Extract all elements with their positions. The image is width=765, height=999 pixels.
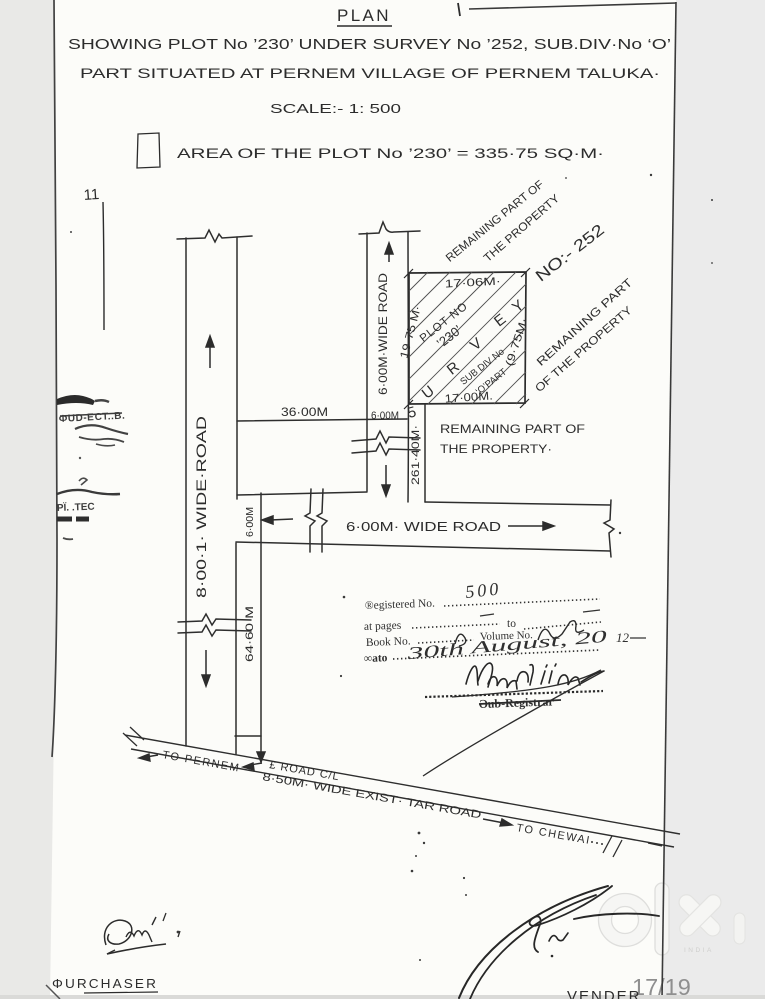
svg-text:AREA OF THE PLOT No ’230’ = 33: AREA OF THE PLOT No ’230’ = 335·75 SQ·M· bbox=[177, 146, 604, 161]
svg-text:at pages: at pages bbox=[364, 620, 402, 633]
svg-text:INDIA: INDIA bbox=[684, 947, 714, 954]
svg-text:6·00M·WIDE ROAD: 6·00M·WIDE ROAD bbox=[376, 273, 390, 395]
svg-text:PЇ. .ТΕС: PЇ. .ТΕС bbox=[57, 500, 95, 514]
svg-text:500: 500 bbox=[464, 578, 502, 602]
svg-text:THE PROPERTY·: THE PROPERTY· bbox=[440, 442, 552, 456]
svg-text:6·00M: 6·00M bbox=[371, 410, 399, 422]
svg-text:261·40M·: 261·40M· bbox=[410, 425, 422, 485]
svg-text:36·00M: 36·00M bbox=[281, 405, 328, 419]
svg-text:VENDER: VENDER bbox=[567, 988, 642, 999]
svg-text:to: to bbox=[507, 618, 516, 630]
svg-text:∞ato: ∞ato bbox=[364, 652, 388, 665]
svg-text:6·00M· WIDE ROAD: 6·00M· WIDE ROAD bbox=[346, 519, 501, 534]
svg-text:64·60 M: 64·60 M bbox=[244, 606, 256, 662]
svg-text:PLAN: PLAN bbox=[337, 6, 391, 25]
svg-text:SHOWING PLOT No ’230’ UNDER SU: SHOWING PLOT No ’230’ UNDER SURVEY No ’2… bbox=[68, 37, 671, 53]
svg-text:11: 11 bbox=[83, 186, 100, 204]
svg-text:SCALE:- 1: 500: SCALE:- 1: 500 bbox=[270, 101, 401, 116]
svg-text:REMAINING PART OF: REMAINING PART OF bbox=[440, 422, 585, 436]
svg-text:6·00M: 6·00M bbox=[245, 507, 256, 537]
svg-text:®egistered No.: ®egistered No. bbox=[365, 598, 436, 612]
svg-text:12: 12 bbox=[616, 630, 630, 645]
svg-text:Book No.: Book No. bbox=[366, 635, 411, 649]
svg-text:ΦURCHASER: ΦURCHASER bbox=[52, 976, 158, 991]
svg-text:8·00·1· WIDE·ROAD: 8·00·1· WIDE·ROAD bbox=[194, 416, 209, 598]
svg-text:PART SITUATED AT PERNEM VILLAG: PART SITUATED AT PERNEM VILLAGE OF PERNE… bbox=[80, 66, 660, 81]
